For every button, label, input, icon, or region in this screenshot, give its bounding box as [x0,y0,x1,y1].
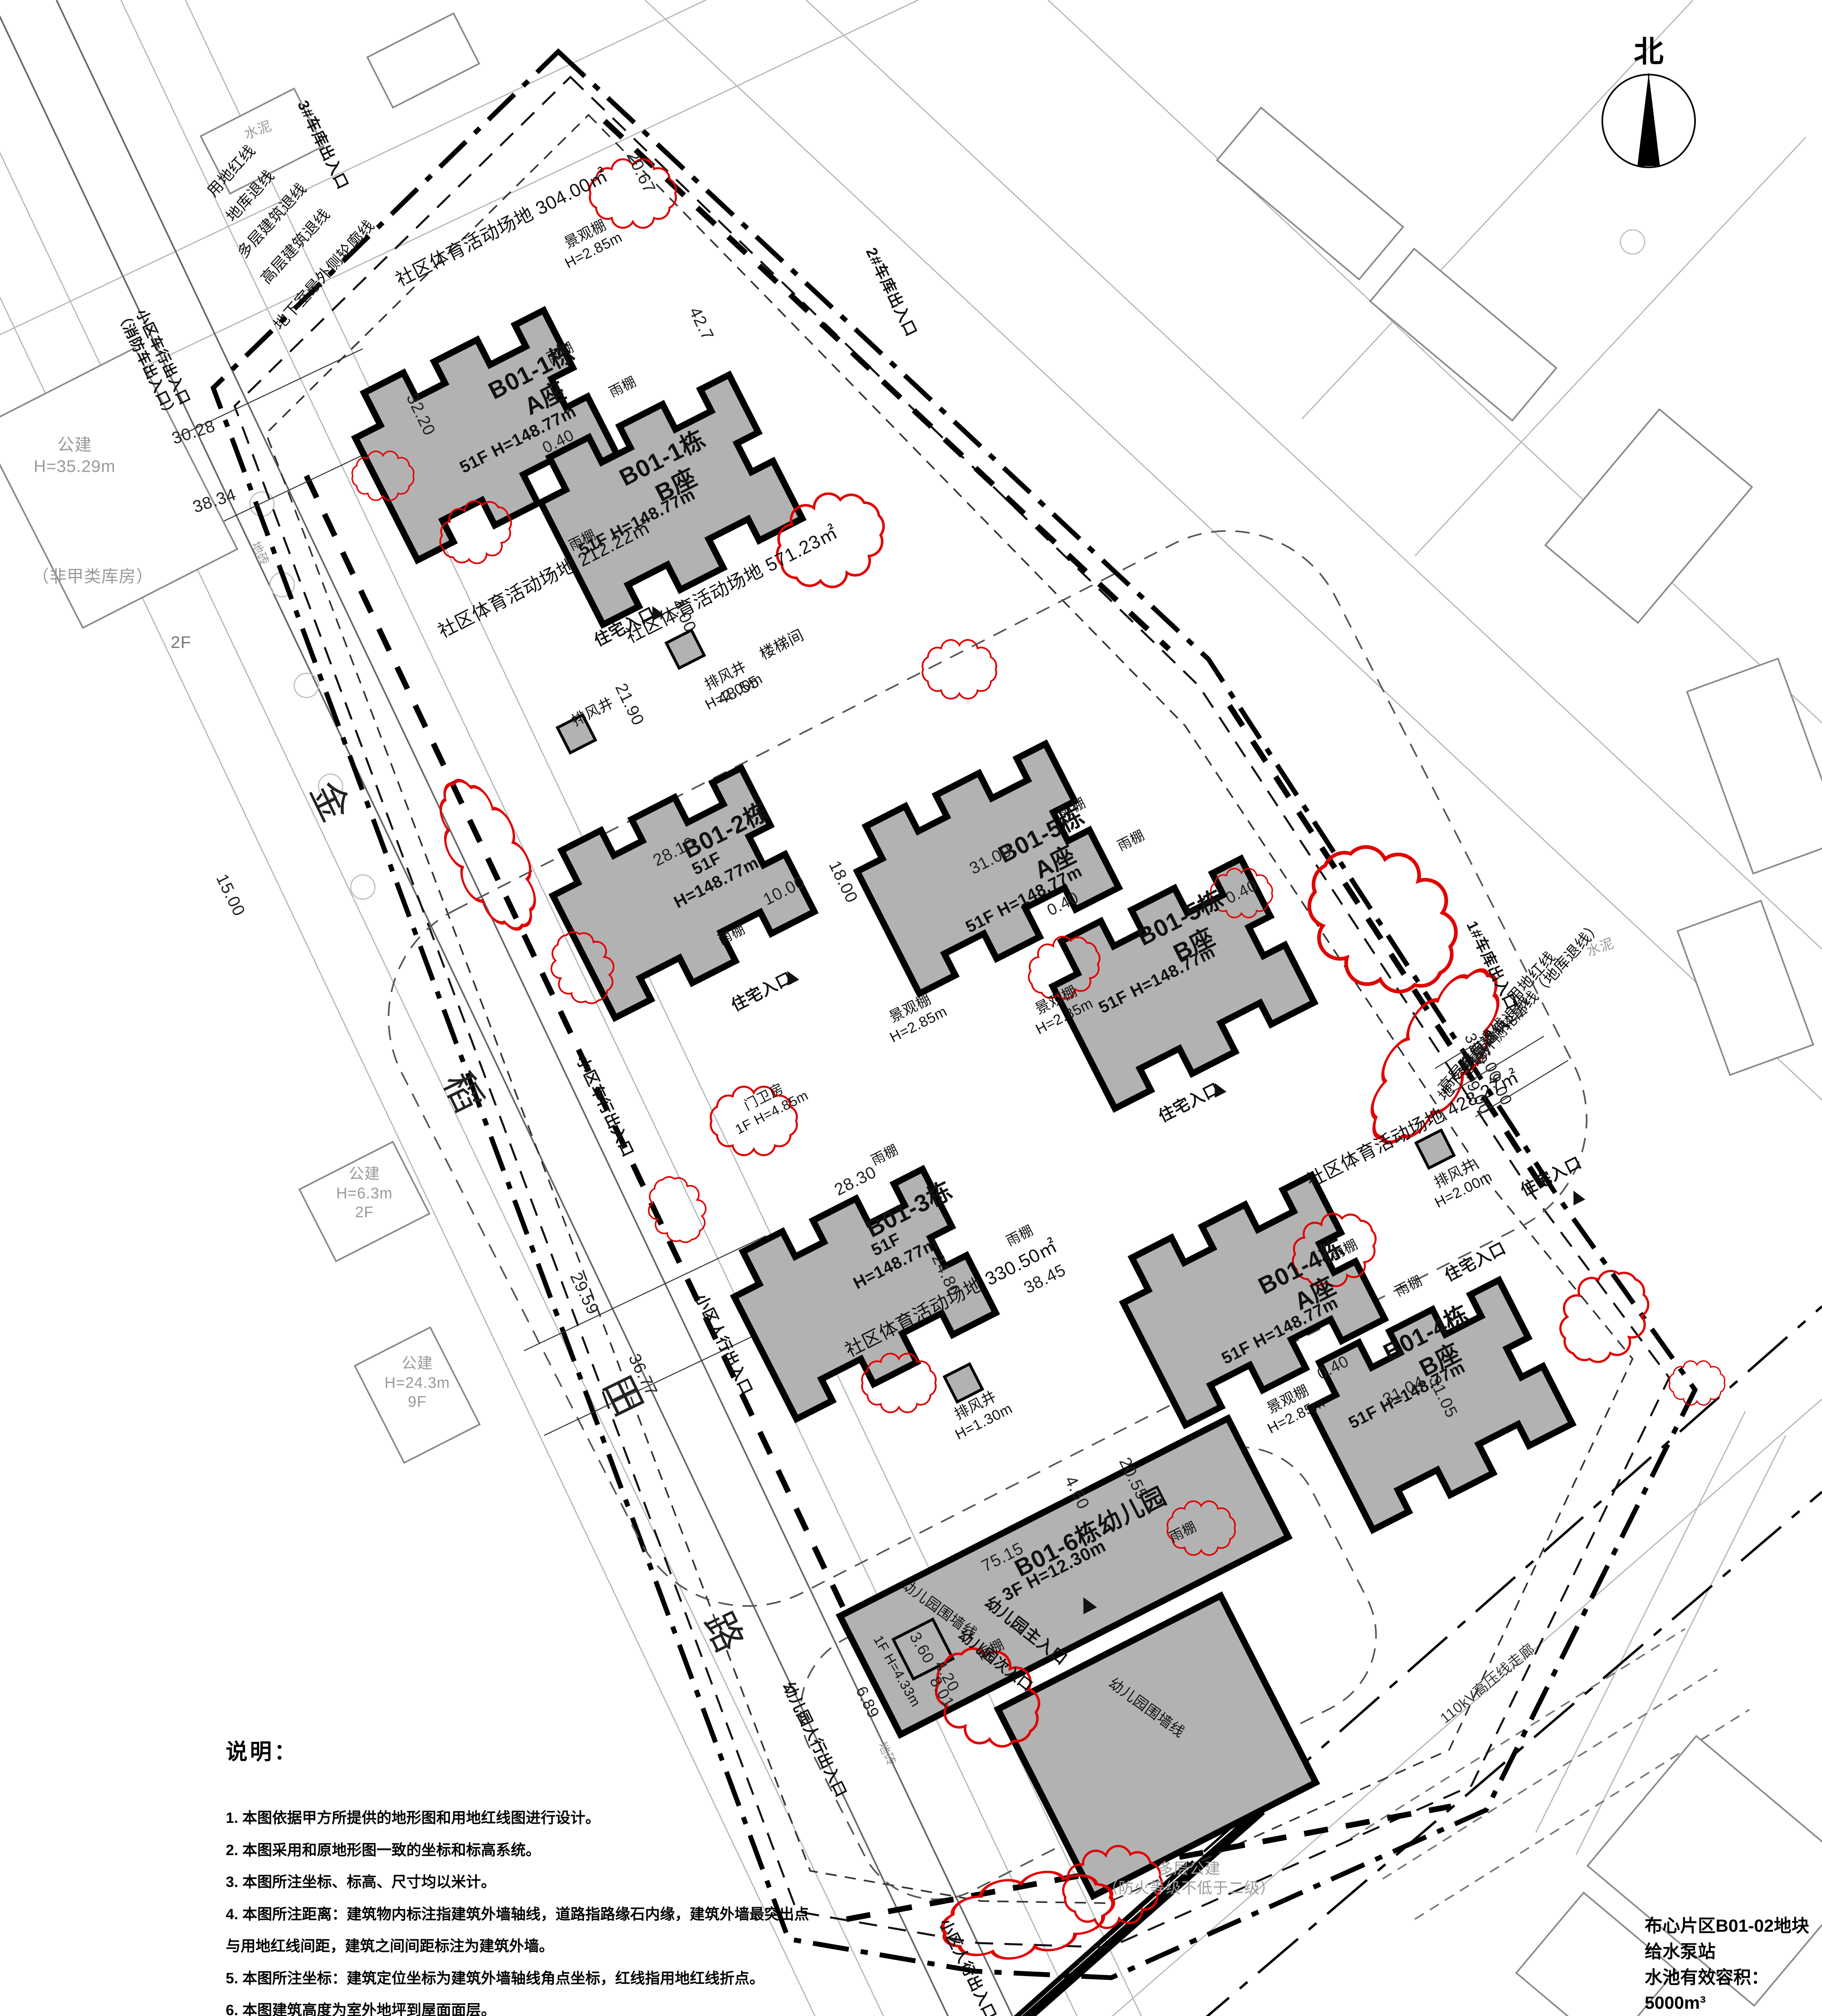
ctx-dizhuan-1: 地砖 [248,539,272,568]
dim-0-40-d: 0.40 [1222,875,1261,908]
label-yupeng-3: 雨棚 [715,921,748,949]
ctx-2f: 2F [171,632,191,653]
notes-list: 1. 本图依据甲方所提供的地形图和用地红线图进行设计。2. 本图采用和原地形图一… [226,1802,992,2016]
dim-21-90: 21.90 [610,680,649,729]
label-yupeng-9: 雨棚 [1392,1272,1425,1300]
legend-l-basement: 地下室最外侧轮廓线 [270,217,379,335]
pump-station-line2: 水池有效容积：5000m³ [1645,1965,1822,2016]
design-notes: 说明： 1. 本图依据甲方所提供的地形图和用地红线图进行设计。2. 本图采用和原… [226,1734,992,2016]
entry-res-ped: 小区人行出入口 [691,1291,756,1398]
pump-station-note: 布心片区B01-02地块给水泵站 水池有效容积：5000m³ [1645,1913,1822,2016]
dim-28-30: 28.30 [831,1162,880,1201]
note-line: 2. 本图采用和原地形图一致的坐标和标高系统。 [226,1834,992,1866]
dim-10-00: 10.00 [759,871,809,910]
ctx-gongjian-1: 公建 H=35.29m [34,435,116,477]
dim-31-00: 31.00 [966,840,1015,879]
dim-6-89: 6.89 [851,1683,884,1721]
ctx-gongjian-2: 公建 H=6.3m 2F [336,1165,393,1223]
dim-0-40-c: 0.40 [1314,1351,1352,1384]
pump-station-line1: 布心片区B01-02地块给水泵站 [1645,1913,1822,1965]
dim-32-20: 32.20 [401,390,440,439]
label-paifengjing-3: 排风井 H=2.00m [1423,1151,1495,1212]
dim-3-60: 3.60 [905,1629,939,1667]
note-line: 4. 本图所注距离：建筑物内标注指建筑外墙轴线，道路指路缘石内缘，建筑外墙最突出… [226,1898,992,1962]
dim-20-55: 20.55 [1114,1454,1152,1503]
label-110kv: 110kV高压线走廊 [1436,1639,1538,1727]
north-label: 北 [1634,28,1664,71]
dim-24-80: 24.80 [927,1250,965,1300]
entry-zhuzhai-5: 住宅入口 [1441,1238,1510,1286]
label-yupeng-5: 雨棚 [1115,827,1148,855]
dim-4-60: 4.60 [1060,1472,1094,1513]
dim-20-67: 20.67 [622,148,660,197]
label-loutijian: 楼梯间 [757,626,807,664]
site-plan-canvas: B01-1栋 A座51F H=148.77mB01-1栋 B座51F H=148… [0,0,1822,2016]
area-sport-571: 社区体育活动场地 571.23㎡ [622,521,842,648]
dim-42-7: 42.7 [684,304,719,344]
dim-15-00: 15.00 [211,871,250,920]
label-yupeng-2: 雨棚 [606,373,639,401]
entry-garage-2: 2#车库出入口 [861,245,921,340]
label-paifengjing-2: 排风井 [568,694,616,730]
note-line: 5. 本图所注坐标：建筑定位坐标为建筑外墙轴线角点坐标，红线指用地红线折点。 [226,1962,992,1995]
dim-18-00: 18.00 [824,857,862,906]
annotation-layer: B01-1栋 A座51F H=148.77mB01-1栋 B座51F H=148… [0,0,1822,2016]
note-line: 6. 本图建筑高度为室外地坪到屋面面层。 [226,1994,992,2016]
road-char-dao: 稻 [433,1064,493,1120]
entry-res-veh-fire: 小区车行出入口 （消防车出入口） [113,299,198,423]
entry-kg-main-tri: ▲ [1067,1583,1105,1623]
label-jingguanpeng-1: 景观棚 H=2.85m [553,212,625,272]
note-line: 3. 本图所注坐标、标高、尺寸均以米计。 [226,1866,992,1898]
label-paifengjing-4: 排风井 H=1.30m [944,1383,1015,1443]
entry-tri-4: ▲ [1560,1178,1593,1213]
label-jingguanpeng-2: 景观棚 H=2.85m [878,986,950,1046]
label-kg-wall-1: 幼儿园围墙线 [898,1575,981,1643]
entry-res-veh: 小区车行出入口 [572,1053,637,1160]
label-yupeng-6: 雨棚 [868,1141,901,1169]
entry-garage-3: 3#车库出入口 [293,98,352,193]
label-kg-wall-2: 幼儿园围墙线 [1105,1674,1188,1741]
dim-29-59: 29.59 [565,1269,603,1318]
dim-30-28: 30.28 [169,415,218,449]
label-menweifang: 门卫房 1F H=4.85m [724,1071,811,1138]
ctx-gongjian-1b: （非甲类库房） [32,566,153,587]
label-jingguanpeng-4: 景观棚 H=2.85m [1256,1377,1328,1437]
ctx-shuini-1: 水泥 [242,117,274,143]
road-char-jin: 金 [300,774,360,829]
dim-38-34: 38.34 [190,484,239,518]
ctx-duoceng-gongjian: 多层公建 （防火等级不低于二级） [1102,1860,1275,1898]
ctx-gongjian-3: 公建 H=24.3m 9F [385,1354,450,1412]
notes-title: 说明： [226,1734,992,1766]
road-char-lu: 路 [694,1605,754,1660]
label-yupeng-10: 雨棚 [1167,1518,1200,1546]
note-line: 1. 本图依据甲方所提供的地形图和用地红线图进行设计。 [226,1802,992,1834]
label-jingguanpeng-3: 景观棚 H=2.85m [1024,978,1096,1038]
